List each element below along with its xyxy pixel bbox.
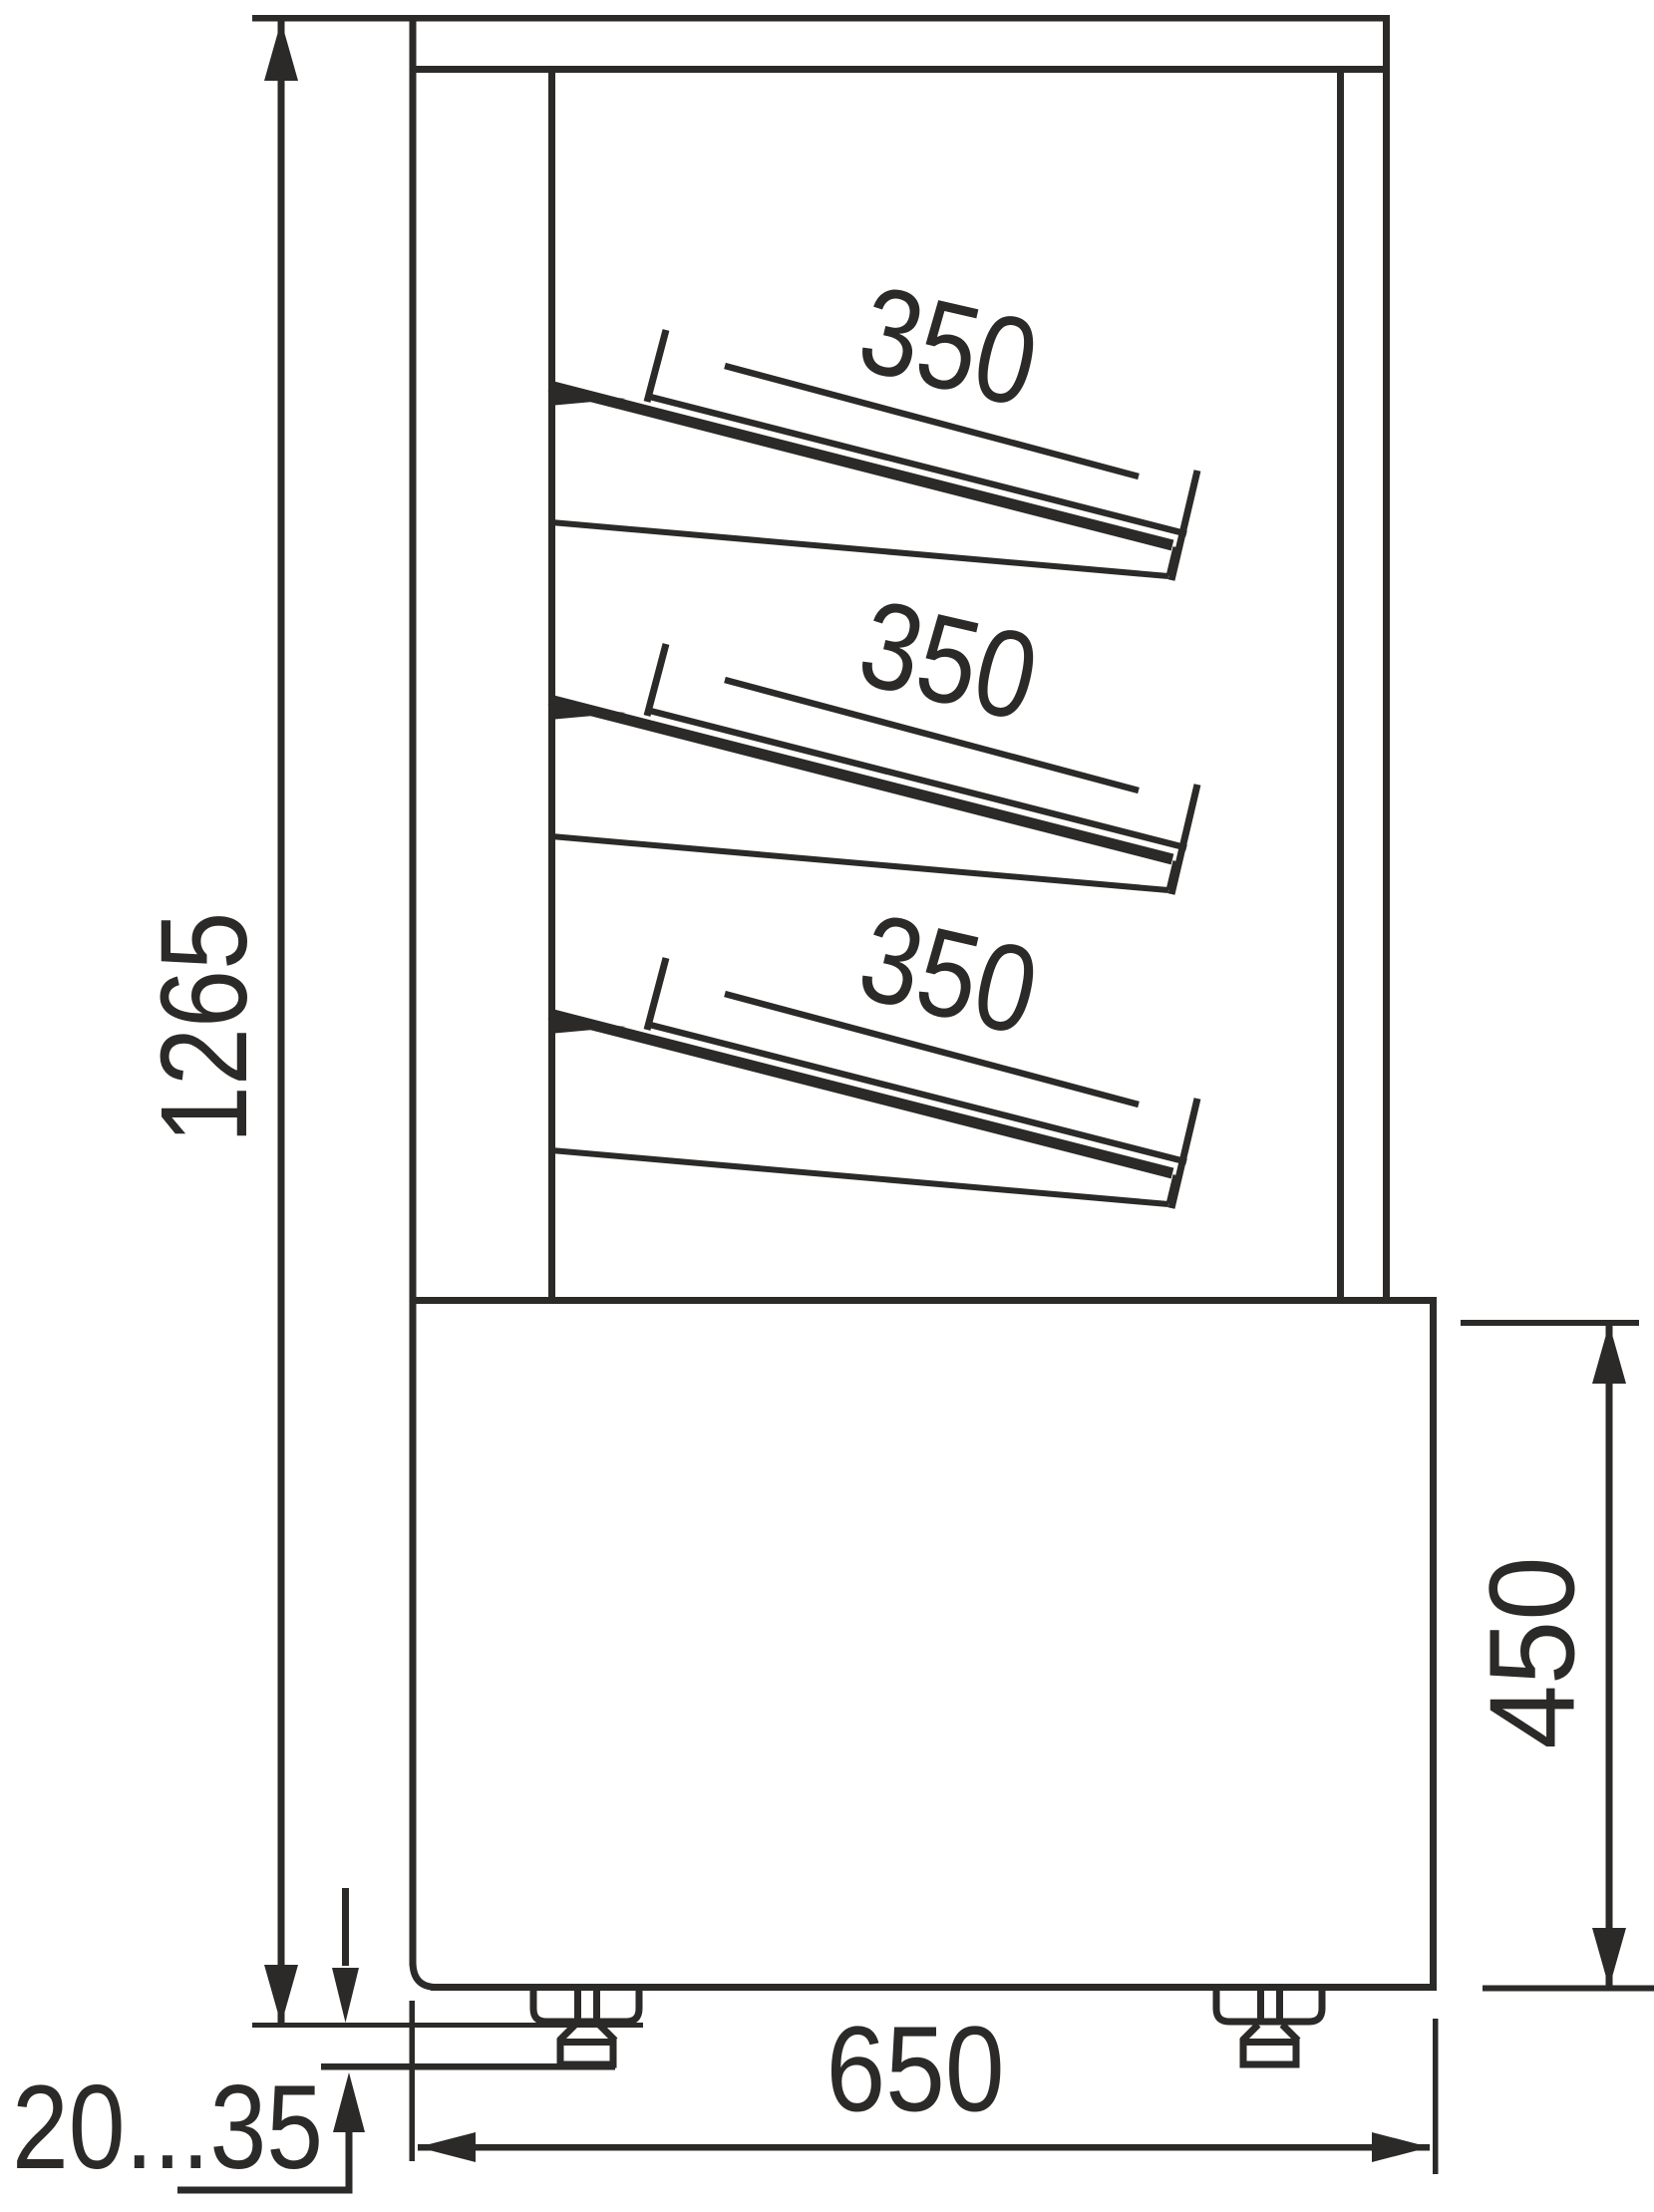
svg-text:450: 450 [1465,1556,1600,1748]
svg-text:20...35: 20...35 [12,2059,323,2194]
svg-text:1265: 1265 [137,912,273,1144]
svg-text:650: 650 [826,2002,1004,2137]
